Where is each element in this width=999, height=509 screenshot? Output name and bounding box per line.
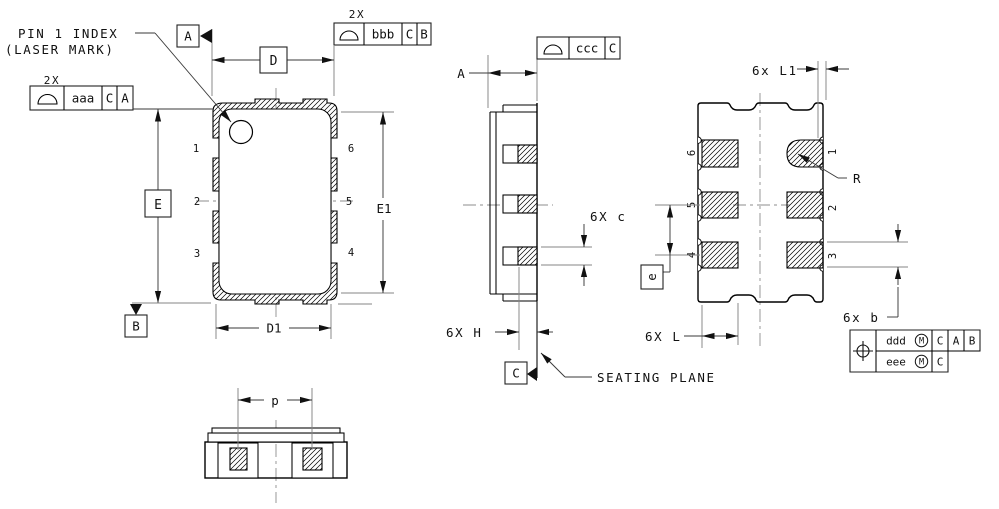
pin1-note-line2: (LASER MARK) (5, 42, 115, 57)
dimension-6x-b: 6x b (827, 224, 908, 325)
fcf-eee-ref1: C (937, 356, 944, 369)
fcf-ddd-tol: ddd (886, 335, 906, 348)
fcf-aaa-tol: aaa (72, 91, 95, 106)
pin-2-label: 2 (827, 205, 839, 211)
pin-5-label: 5 (346, 196, 352, 208)
dimension-e: e (641, 205, 700, 289)
dim-R-label: R (853, 171, 861, 186)
datum-B-label: B (132, 319, 140, 334)
datum-C-label: C (512, 366, 520, 381)
fcf-position-composite: ddd M C A B eee M C (850, 330, 980, 372)
datum-flag-A: A (177, 25, 212, 47)
dimension-6x-c: 6X c (541, 209, 627, 286)
fcf-ccc-tol: ccc (576, 41, 599, 56)
pin-1-label: 1 (827, 149, 839, 155)
fcf-ddd-ref2: A (953, 335, 960, 348)
side-view (463, 103, 553, 301)
pin1-note-line1: PIN 1 INDEX (18, 26, 118, 41)
front-view-pad-recesses (218, 443, 333, 478)
pin1-laser-mark (230, 121, 253, 144)
dim-6x-l-label: 6X L (645, 329, 682, 344)
fcf-bbb-qty: 2X (349, 8, 365, 21)
dim-D-label: D (270, 54, 278, 69)
pin-4-label: 4 (348, 247, 354, 259)
fcf-ddd-ref3: B (969, 335, 976, 348)
dimension-6x-l1: 6x L1 (752, 61, 849, 138)
pin-6-label: 6 (686, 150, 698, 156)
pin-6-label: 6 (348, 143, 354, 155)
datum-flag-C: C (505, 362, 537, 384)
dim-6x-h-label: 6X H (446, 325, 483, 340)
dimension-D1: D1 (216, 304, 331, 339)
dim-A-label: A (457, 66, 465, 81)
dimension-E1: E1 (338, 112, 394, 304)
drawing-canvas: 1 2 3 6 5 4 PIN 1 INDEX (LASER MARK) D A… (0, 0, 999, 509)
dim-E-label: E (154, 198, 162, 213)
dim-6x-b-label: 6x b (843, 310, 880, 325)
dimension-A: A (457, 55, 537, 108)
datum-flag-B: B (125, 304, 147, 337)
fcf-aaa-ref1: C (106, 91, 114, 106)
fcf-eee-mod: M (919, 358, 924, 368)
fcf-bbb-tol: bbb (372, 27, 395, 42)
fcf-eee-tol: eee (886, 356, 906, 369)
fcf-ccc-ref1: C (609, 41, 617, 56)
top-view: 1 2 3 6 5 4 (193, 88, 356, 318)
front-view (205, 420, 347, 503)
dim-6x-c-label: 6X c (590, 209, 627, 224)
dim-D1-label: D1 (266, 321, 281, 336)
dim-6x-l1-label: 6x L1 (752, 63, 798, 78)
pin1-pad-rounded (787, 140, 823, 167)
pin-3-label: 3 (194, 248, 200, 260)
fcf-aaa-qty: 2X (44, 74, 60, 87)
fcf-bbb: 2X bbb C B (334, 8, 431, 45)
seating-plane-callout: SEATING PLANE (541, 353, 716, 385)
pin-1-label: 1 (193, 143, 199, 155)
fcf-ddd-mod: M (919, 337, 924, 347)
dim-E1-label: E1 (376, 201, 391, 216)
bottom-view-pads (702, 140, 823, 268)
fcf-bbb-ref2: B (420, 27, 428, 42)
fcf-aaa-ref2: A (121, 91, 129, 106)
fcf-aaa: 2X aaa C A (30, 74, 213, 110)
dimension-D: D (212, 29, 334, 96)
package-outline-drawing: 1 2 3 6 5 4 PIN 1 INDEX (LASER MARK) D A… (0, 0, 999, 509)
fcf-ddd-ref1: C (937, 335, 944, 348)
fcf-bbb-ref1: C (406, 27, 414, 42)
datum-A-label: A (184, 29, 192, 44)
dim-e-label: e (644, 273, 659, 281)
side-view-pads (503, 145, 537, 265)
bottom-view: 6 5 4 1 2 3 (686, 93, 839, 347)
seating-plane-label: SEATING PLANE (597, 370, 716, 385)
pin-3-label: 3 (827, 253, 839, 259)
dim-p-label: p (271, 393, 279, 408)
pin-2-label: 2 (194, 196, 200, 208)
fcf-ccc: ccc C (537, 37, 620, 59)
dimension-6x-l: 6X L (645, 303, 738, 348)
